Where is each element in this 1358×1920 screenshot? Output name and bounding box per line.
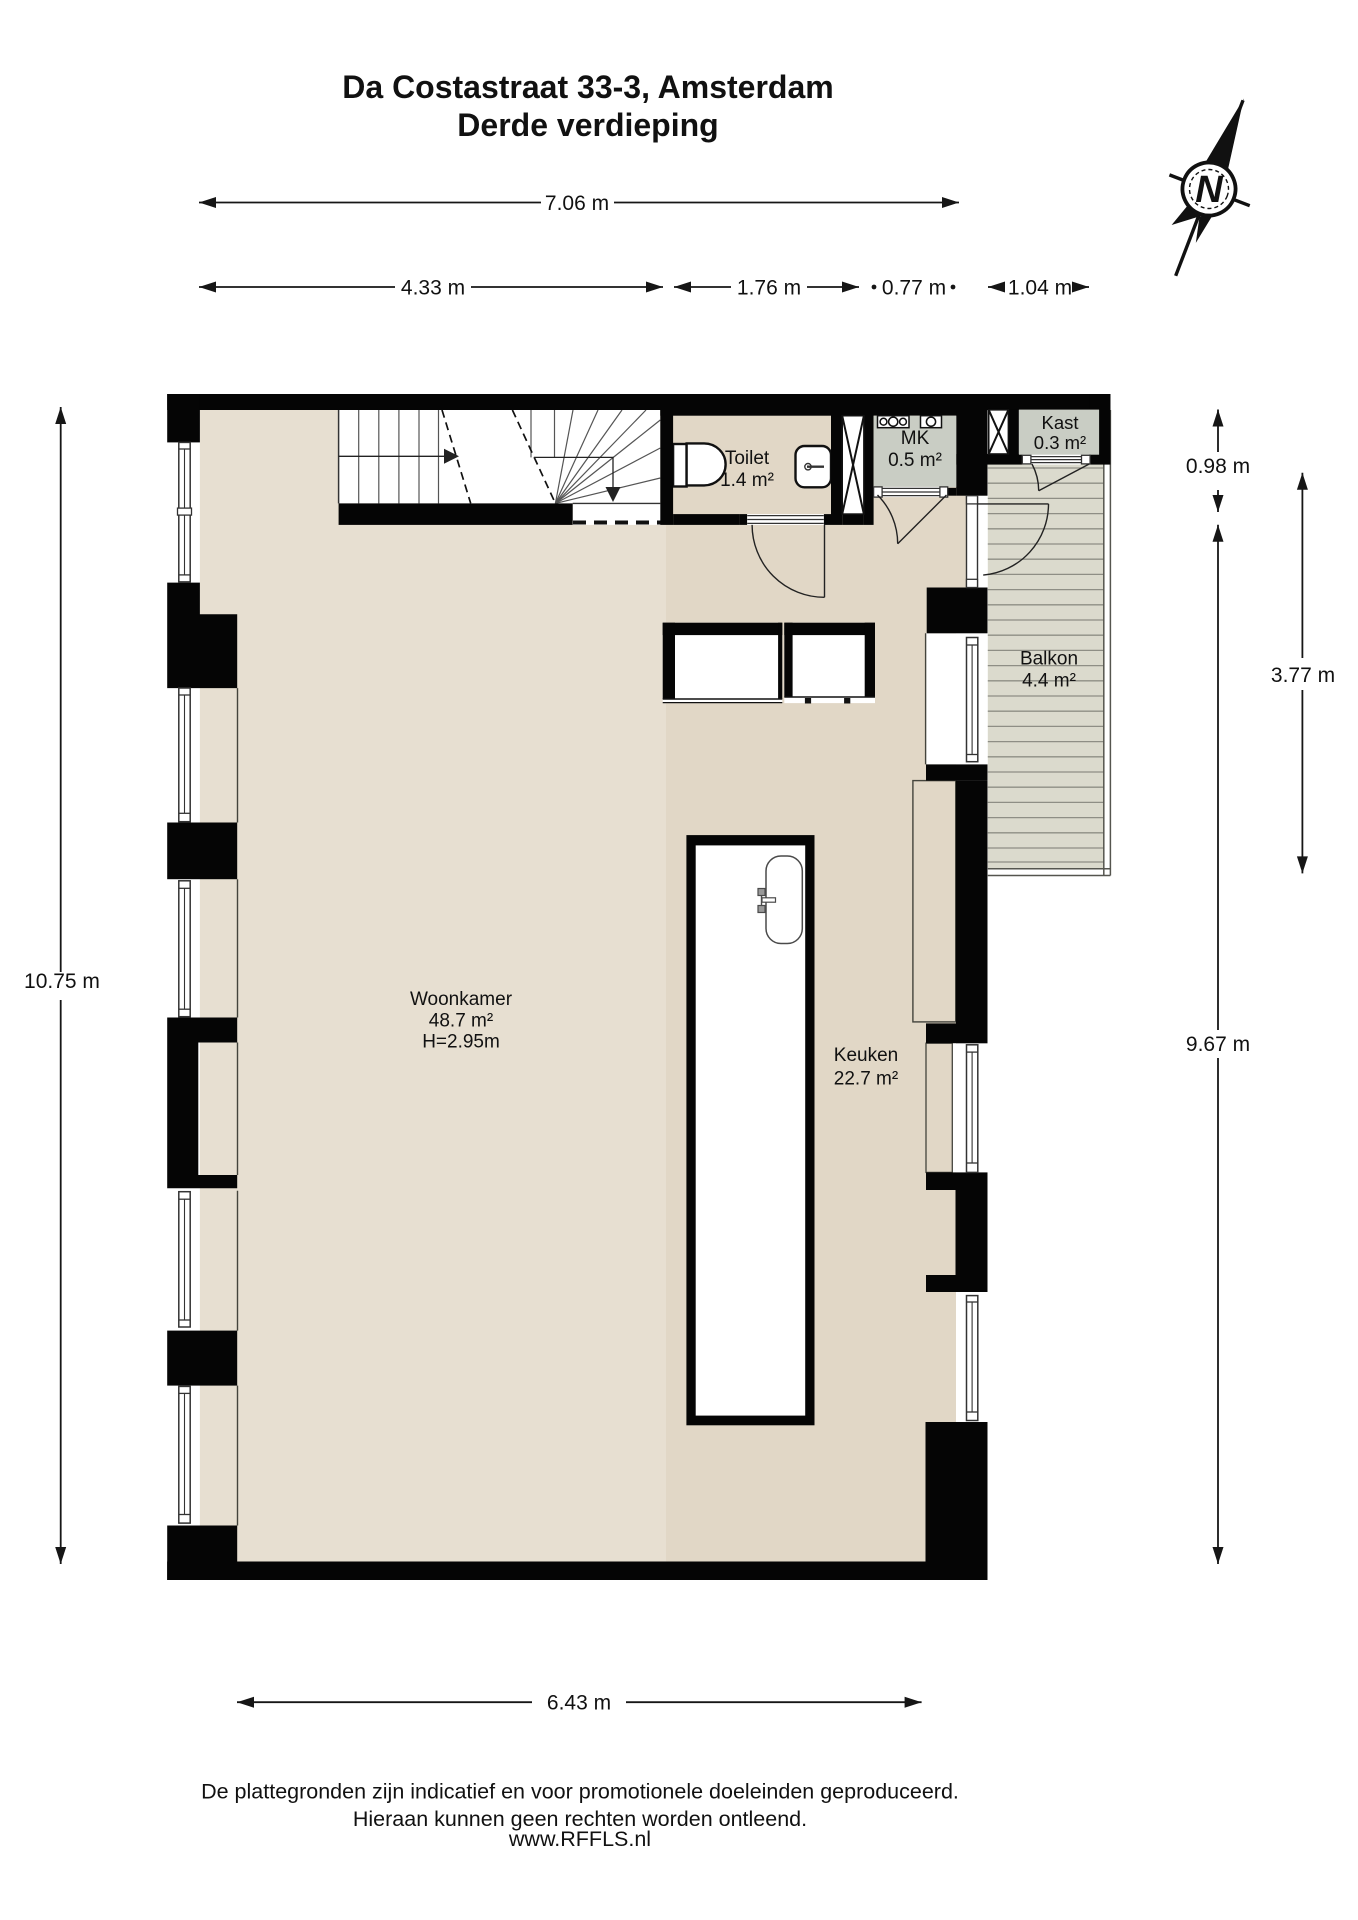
svg-text:0.98 m: 0.98 m [1186,455,1250,478]
svg-text:Da Costastraat 33-3, Amsterdam: Da Costastraat 33-3, Amsterdam [342,69,833,105]
svg-text:0.77 m: 0.77 m [882,277,946,300]
svg-text:Woonkamer: Woonkamer [410,989,513,1010]
svg-text:Balkon: Balkon [1020,649,1078,670]
svg-text:7.06 m: 7.06 m [545,192,609,215]
svg-text:N: N [1195,169,1224,211]
svg-text:www.RFFLS.nl: www.RFFLS.nl [508,1827,651,1851]
svg-text:Derde verdieping: Derde verdieping [457,107,718,143]
svg-text:4.4 m²: 4.4 m² [1022,670,1076,691]
svg-text:H=2.95m: H=2.95m [422,1032,500,1053]
svg-text:Keuken: Keuken [834,1045,898,1066]
svg-text:48.7 m²: 48.7 m² [429,1011,493,1032]
svg-text:1.76 m: 1.76 m [737,277,801,300]
svg-text:1.4 m²: 1.4 m² [720,470,774,491]
svg-text:22.7 m²: 22.7 m² [834,1069,898,1090]
svg-text:3.77 m: 3.77 m [1271,664,1335,687]
svg-text:De plattegronden zijn indicati: De plattegronden zijn indicatief en voor… [201,1779,959,1803]
svg-text:Kast: Kast [1041,412,1078,433]
svg-text:0.5 m²: 0.5 m² [888,450,942,471]
svg-text:10.75 m: 10.75 m [24,970,100,993]
svg-text:0.3 m²: 0.3 m² [1034,432,1086,453]
svg-text:4.33 m: 4.33 m [401,277,465,300]
svg-text:MK: MK [901,428,930,449]
svg-text:Toilet: Toilet [725,448,770,469]
svg-text:9.67 m: 9.67 m [1186,1033,1250,1056]
svg-text:1.04 m: 1.04 m [1008,277,1072,300]
svg-text:6.43 m: 6.43 m [547,1692,611,1715]
